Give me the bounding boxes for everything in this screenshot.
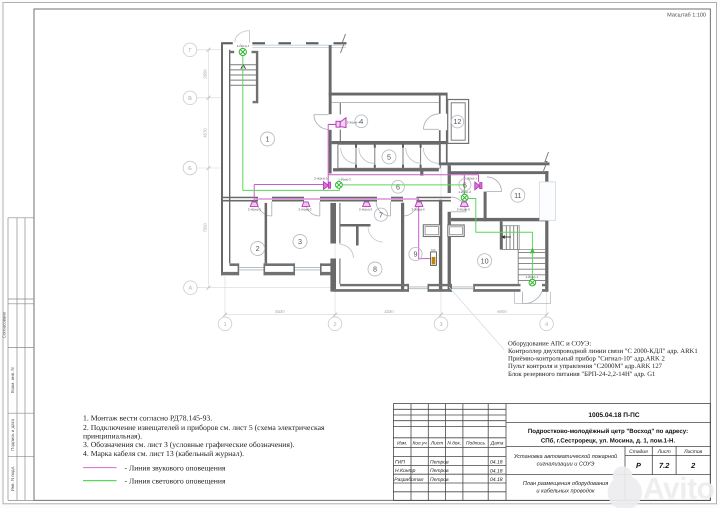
svg-text:СПб, г.Сестрорецк, ул. Мосина,: СПб, г.Сестрорецк, ул. Мосина, д. 1, пом… <box>541 437 676 444</box>
svg-text:1-Й(из)-3: 1-Й(из)-3 <box>338 177 351 181</box>
svg-text:План размещения оборудования: План размещения оборудования <box>523 480 609 487</box>
svg-text:Б: Б <box>188 166 192 172</box>
svg-text:Установка автоматической пожар: Установка автоматической пожарной <box>513 453 617 460</box>
svg-text:8430: 8430 <box>275 309 285 314</box>
svg-text:сигнализации и СОУЭ: сигнализации и СОУЭ <box>537 462 595 468</box>
svg-text:7: 7 <box>379 210 383 219</box>
svg-text:04.18: 04.18 <box>490 477 503 483</box>
svg-text:2-Ж(из)-6: 2-Ж(из)-6 <box>412 207 425 211</box>
svg-text:8: 8 <box>373 265 377 274</box>
svg-text:2. Подключение извещателей и п: 2. Подключение извещателей и приборов см… <box>83 423 325 432</box>
svg-text:Avito: Avito <box>643 473 715 506</box>
svg-text:6: 6 <box>463 180 467 189</box>
svg-text:4330: 4330 <box>384 309 394 314</box>
svg-text:1005.04.18 П-ПС: 1005.04.18 П-ПС <box>588 412 640 419</box>
svg-text:N док.: N док. <box>447 441 461 447</box>
svg-text:7500: 7500 <box>202 222 207 232</box>
svg-text:1-Й(из)-4: 1-Й(из)-4 <box>237 44 250 48</box>
svg-text:Подпись и дата: Подпись и дата <box>10 419 15 451</box>
svg-text:Лист: Лист <box>430 441 443 447</box>
svg-text:и кабельных проводок: и кабельных проводок <box>536 488 595 495</box>
svg-text:11: 11 <box>514 191 521 200</box>
svg-text:Г: Г <box>188 48 191 54</box>
svg-text:3: 3 <box>439 322 442 328</box>
svg-text:04.18: 04.18 <box>490 468 503 474</box>
svg-text:4. Марка кабеля см. лист 13 (к: 4. Марка кабеля см. лист 13 (кабельный ж… <box>83 449 244 458</box>
svg-text:2: 2 <box>333 322 336 328</box>
svg-text:4570: 4570 <box>202 128 207 138</box>
svg-text:Масштаб 1:100: Масштаб 1:100 <box>667 12 706 19</box>
svg-text:2-Ж(из)-1: 2-Ж(из)-1 <box>248 207 261 211</box>
svg-text:2: 2 <box>690 461 696 470</box>
svg-text:7.2: 7.2 <box>659 461 670 470</box>
svg-text:Петров: Петров <box>430 468 449 474</box>
svg-text:1. Монтаж вести согласно РД78.: 1. Монтаж вести согласно РД78.145-93. <box>83 414 212 423</box>
svg-text:ГИП: ГИП <box>395 459 405 465</box>
svg-text:Лист: Лист <box>657 449 671 455</box>
svg-text:2950: 2950 <box>202 69 207 79</box>
svg-text:2: 2 <box>256 244 260 253</box>
svg-text:Разработал: Разработал <box>394 477 423 483</box>
svg-text:1: 1 <box>266 135 270 144</box>
svg-text:4: 4 <box>359 117 363 126</box>
svg-text:Стадия: Стадия <box>629 449 648 455</box>
svg-text:- Линия светового оповещения: - Линия светового оповещения <box>125 476 227 485</box>
svg-text:Листов: Листов <box>683 449 703 455</box>
svg-text:Р: Р <box>636 461 641 470</box>
svg-text:Дата: Дата <box>490 441 504 447</box>
svg-text:- Линия звукового оповещения: - Линия звукового оповещения <box>125 463 226 472</box>
svg-text:3. Обозначения см. лист 3 (усл: 3. Обозначения см. лист 3 (условные граф… <box>83 440 295 449</box>
svg-text:Подростково-молодёжный цетр "В: Подростково-молодёжный цетр "Восход" по … <box>528 428 688 435</box>
svg-text:Н.Контр: Н.Контр <box>395 468 416 474</box>
svg-text:12: 12 <box>453 117 461 126</box>
svg-text:Блок резервного питания "БРП-2: Блок резервного питания "БРП-24-2,2-14Н"… <box>508 371 655 378</box>
svg-text:6000: 6000 <box>497 309 507 314</box>
svg-text:Подпись: Подпись <box>466 441 486 447</box>
svg-text:А: А <box>189 286 193 292</box>
svg-text:Изм.: Изм. <box>397 441 407 447</box>
svg-text:Оборудование АПС и СОУЭ:: Оборудование АПС и СОУЭ: <box>508 340 591 347</box>
svg-text:2-Ж(из)-3: 2-Ж(из)-3 <box>359 207 372 211</box>
svg-text:10: 10 <box>481 256 489 265</box>
svg-text:04.18: 04.18 <box>490 460 503 466</box>
svg-text:Взам. инв. N: Взам. инв. N <box>10 367 15 393</box>
svg-text:1-Й(из)-1: 1-Й(из)-1 <box>526 275 539 279</box>
svg-text:Петров: Петров <box>430 477 449 483</box>
svg-text:Кол.уч: Кол.уч <box>412 441 427 447</box>
svg-text:В: В <box>188 96 192 102</box>
svg-text:Приёмно-контрольный прибор "Си: Приёмно-контрольный прибор "Сигнал-10" а… <box>508 356 665 363</box>
svg-text:2-Ж(из)-5: 2-Ж(из)-5 <box>314 177 327 181</box>
svg-text:Петров: Петров <box>430 459 449 465</box>
svg-text:Инв. N подл.: Инв. N подл. <box>10 466 15 492</box>
svg-text:Согласовано: Согласовано <box>2 311 7 338</box>
svg-text:2-Ж(из)-8: 2-Ж(из)-8 <box>457 207 470 211</box>
svg-text:6: 6 <box>396 182 400 191</box>
svg-text:3: 3 <box>298 237 302 246</box>
svg-text:4: 4 <box>545 322 548 328</box>
svg-text:Контроллер двухпроводной линии: Контроллер двухпроводной линии связи "С … <box>508 348 698 355</box>
svg-text:2-Ж(из)-4: 2-Ж(из)-4 <box>347 121 360 125</box>
svg-text:1: 1 <box>223 322 226 328</box>
svg-text:2-Ж(из)-2: 2-Ж(из)-2 <box>298 207 311 211</box>
svg-text:9: 9 <box>414 250 418 259</box>
svg-text:адр.: адр. <box>431 248 437 252</box>
svg-text:Пульт контроля и управления "С: Пульт контроля и управления "С2000М" адр… <box>508 363 663 370</box>
svg-text:5: 5 <box>387 153 391 162</box>
